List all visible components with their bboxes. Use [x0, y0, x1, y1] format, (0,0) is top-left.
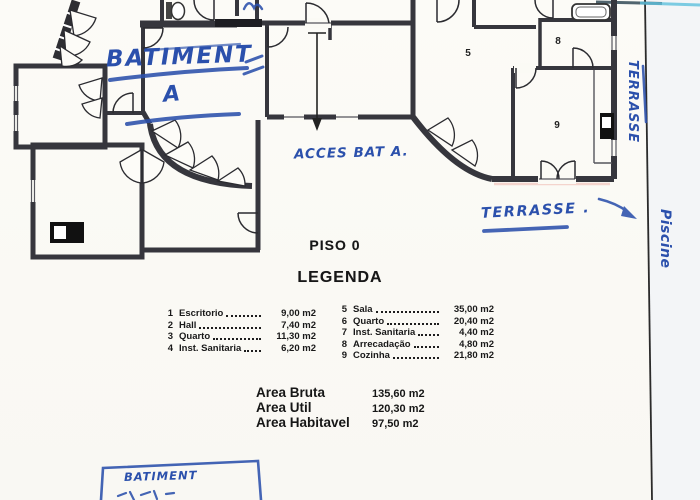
legend-num: 2	[162, 320, 173, 331]
piscine-vertical-annotation: Piscine	[657, 209, 673, 268]
legend-label: Inst. Sanitaria	[179, 343, 241, 354]
legend-row: 2Hall7,40 m2	[162, 319, 316, 330]
floor-title: PISO 0	[255, 237, 415, 253]
dotted-leader	[244, 350, 261, 352]
legend-num: 9	[336, 350, 347, 361]
toilet-icon	[172, 3, 185, 20]
legend-label: Arrecadação	[353, 339, 411, 350]
room-label-8: 8	[555, 36, 561, 47]
legend-left-column: 1Escritorio9,00 m2 2Hall7,40 m2 3Quarto1…	[162, 308, 316, 354]
dotted-leader	[226, 315, 261, 317]
legend-value: 11,30 m2	[264, 331, 316, 342]
dotted-leader	[414, 346, 439, 348]
legend-value: 4,40 m2	[442, 327, 494, 338]
legend-label: Cozinha	[353, 350, 390, 361]
area-summary: Area Bruta135,60 m2 Area Util120,30 m2 A…	[256, 385, 425, 430]
legend-num: 4	[162, 343, 173, 354]
legend-num: 3	[162, 331, 173, 342]
wall-threshold	[215, 19, 262, 27]
legend-value: 21,80 m2	[442, 350, 494, 361]
legend-row: 5Sala35,00 m2	[336, 304, 494, 315]
legend-value: 9,00 m2	[264, 308, 316, 319]
area-row: Area Bruta135,60 m2	[256, 385, 425, 400]
legend-num: 6	[336, 316, 347, 327]
legend-title: LEGENDA	[260, 269, 420, 287]
legend-value: 7,40 m2	[264, 320, 316, 331]
scanned-floor-plan-page: 5 8 9 PISO 0 LEGENDA 1Escritorio9,00 m2 …	[0, 0, 700, 500]
legend-row: 1Escritorio9,00 m2	[162, 308, 316, 319]
terrasse-vertical-annotation: TERRASSE	[625, 60, 640, 143]
legend-label: Escritorio	[179, 308, 223, 319]
legend-value: 35,00 m2	[442, 304, 494, 315]
dotted-leader	[418, 334, 439, 336]
scan-streak-cyan	[640, 3, 700, 5]
legend-right-column: 5Sala35,00 m2 6Quarto20,40 m2 7Inst. San…	[336, 304, 494, 361]
dotted-leader	[393, 357, 439, 359]
legend-label: Sala	[353, 304, 373, 315]
legend-label: Quarto	[353, 316, 384, 327]
legend-row: 9Cozinha21,80 m2	[336, 350, 494, 361]
batiment-letter-annotation: A	[162, 81, 181, 107]
legend-label: Quarto	[179, 331, 210, 342]
bathtub-icon	[572, 4, 610, 20]
legend-row: 7Inst. Sanitaria4,40 m2	[336, 327, 494, 338]
legend-row: 3Quarto11,30 m2	[162, 331, 316, 342]
legend-value: 4,80 m2	[442, 339, 494, 350]
legend-value: 6,20 m2	[264, 343, 316, 354]
dotted-leader	[387, 323, 439, 325]
room-label-9: 9	[554, 120, 560, 131]
dotted-leader	[199, 327, 261, 329]
room-label-5: 5	[465, 48, 471, 59]
legend-value: 20,40 m2	[442, 316, 494, 327]
area-value: 97,50 m2	[372, 418, 418, 430]
area-row: Area Util120,30 m2	[256, 400, 425, 415]
legend-num: 5	[336, 304, 347, 315]
batiment-annotation: BATIMENT	[106, 41, 254, 72]
stamp-box-label: BATIMENT	[124, 468, 198, 484]
legend-label: Inst. Sanitaria	[353, 327, 415, 338]
stamp-box-clipped-writing	[118, 491, 174, 500]
dotted-leader	[376, 311, 439, 313]
legend-label: Hall	[179, 320, 196, 331]
legend-num: 8	[336, 339, 347, 350]
area-value: 120,30 m2	[372, 403, 425, 415]
legend-row: 4Inst. Sanitaria6,20 m2	[162, 342, 316, 353]
area-label: Area Bruta	[256, 385, 372, 400]
legend-num: 1	[162, 308, 173, 319]
area-row: Area Habitavel97,50 m2	[256, 415, 425, 430]
clipped-top-scribble	[244, 3, 262, 9]
terrasse-underline	[484, 227, 567, 231]
access-annotation: ACCES BAT A.	[294, 144, 409, 163]
legend-num: 7	[336, 327, 347, 338]
area-label: Area Habitavel	[256, 415, 372, 430]
dotted-leader	[213, 338, 261, 340]
legend-row: 8Arrecadação4,80 m2	[336, 338, 494, 349]
area-label: Area Util	[256, 400, 372, 415]
area-value: 135,60 m2	[372, 388, 425, 400]
legend-row: 6Quarto20,40 m2	[336, 315, 494, 326]
